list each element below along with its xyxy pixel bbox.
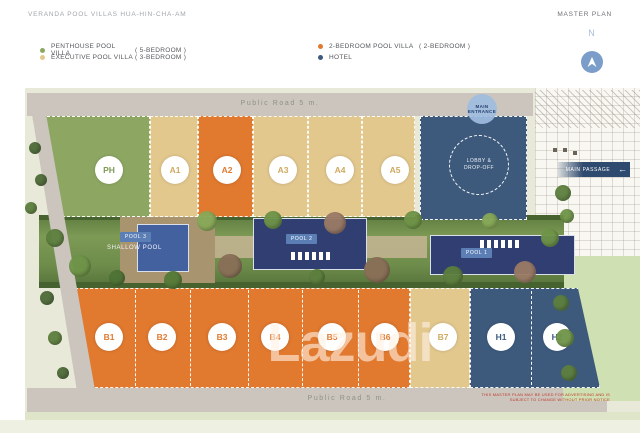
- tree-icon: [404, 211, 422, 229]
- tree-icon: [553, 295, 569, 311]
- legend-label: 2-BEDROOM POOL VILLA: [329, 43, 419, 50]
- entrance-label: ENTRANCE: [468, 109, 496, 115]
- floorplan-detail: [573, 151, 577, 155]
- shallow-pool-label: SHALLOW POOL: [107, 245, 162, 251]
- master-plan-page: VERANDA POOL VILLAS HUA-HIN-CHA-AM MASTE…: [0, 0, 640, 433]
- floorplan-hatch: [535, 90, 640, 128]
- legend-detail: ( 5-BEDROOM ): [135, 47, 186, 54]
- tree-icon: [35, 174, 47, 186]
- tree-icon: [69, 255, 91, 277]
- unit-circle-B2: B2: [148, 323, 176, 351]
- tree-icon: [309, 269, 325, 285]
- main-passage-banner: MAIN PASSAGE ←: [558, 162, 630, 177]
- tree-icon: [560, 209, 574, 223]
- tree-icon: [25, 202, 37, 214]
- tree-icon: [164, 271, 182, 289]
- legend-item-two-bedroom: 2-BEDROOM POOL VILLA ( 2-BEDROOM ): [318, 43, 470, 50]
- plan-label: MASTER PLAN: [557, 11, 612, 18]
- tree-icon: [40, 291, 54, 305]
- legend-item-hotel: HOTEL: [318, 54, 419, 61]
- unit-circle-A1: A1: [161, 156, 189, 184]
- compass-arrow-icon: [581, 51, 603, 73]
- unit-circle-A5: A5: [381, 156, 409, 184]
- lobby-label: LOBBY &: [467, 158, 492, 165]
- lobby-label: DROP-OFF: [464, 165, 494, 172]
- disclaimer-text: THIS MASTER PLAN MAY BE USED FOR ADVERTI…: [405, 392, 610, 402]
- tree-icon: [561, 365, 577, 381]
- compass-north-label: N: [581, 28, 603, 38]
- unit-circle-PH: PH: [95, 156, 123, 184]
- legend-label: EXECUTIVE POOL VILLA: [51, 54, 135, 61]
- tree-icon: [541, 229, 559, 247]
- main-entrance-badge: MAIN ENTRANCE: [467, 94, 497, 124]
- tree-icon: [57, 367, 69, 379]
- pool-3-badge: POOL 3: [120, 232, 151, 242]
- pool-steps: [480, 240, 519, 248]
- unit-circle-A4: A4: [326, 156, 354, 184]
- tree-icon: [264, 211, 282, 229]
- tree-icon: [556, 329, 574, 347]
- floorplan-detail: [563, 148, 567, 152]
- unit-circle-A2: A2: [213, 156, 241, 184]
- public-road-top: Public Road 5 m.: [27, 93, 533, 116]
- tree-icon: [443, 266, 463, 286]
- legend-label: HOTEL: [329, 54, 419, 61]
- pool-1-badge: POOL 1: [461, 248, 492, 258]
- walkway: [367, 236, 427, 258]
- tree-icon: [29, 142, 41, 154]
- main-passage-label: MAIN PASSAGE: [558, 167, 618, 173]
- floorplan-detail: [553, 148, 557, 152]
- tree-icon: [555, 185, 571, 201]
- unit-circle-A3: A3: [269, 156, 297, 184]
- legend-dot-two-bedroom-icon: [318, 44, 323, 49]
- unit-divider: [531, 291, 532, 385]
- legend-dot-executive-icon: [40, 55, 45, 60]
- legend-detail: ( 3-BEDROOM ): [135, 54, 186, 61]
- pool-steps: [291, 252, 330, 260]
- pool-2-badge: POOL 2: [286, 234, 317, 244]
- arrow-left-icon: ←: [618, 165, 627, 174]
- footer-lawn-strip: [0, 420, 640, 433]
- legend-dot-hotel-icon: [318, 55, 323, 60]
- tree-icon: [364, 257, 390, 283]
- tree-icon: [109, 270, 125, 286]
- lawn-strip: [25, 412, 640, 420]
- tree-icon: [46, 229, 64, 247]
- site-map: Public Road 5 m. Public Road 5 m. POOL 3…: [25, 88, 640, 420]
- legend-dot-penthouse-icon: [40, 48, 45, 53]
- legend-item-executive: EXECUTIVE POOL VILLA ( 3-BEDROOM ): [40, 54, 186, 61]
- tree-icon: [48, 331, 62, 345]
- unit-divider: [135, 290, 136, 386]
- tree-icon: [324, 212, 346, 234]
- road-label-top: Public Road 5 m.: [27, 100, 533, 107]
- tree-icon: [218, 254, 242, 278]
- unit-divider: [190, 290, 191, 386]
- watermark: Lazudi: [195, 312, 505, 374]
- tree-icon: [514, 261, 536, 283]
- tree-icon: [482, 213, 498, 229]
- page-title: VERANDA POOL VILLAS HUA-HIN-CHA-AM: [28, 11, 186, 18]
- legend-detail: ( 2-BEDROOM ): [419, 43, 470, 50]
- tree-icon: [197, 211, 217, 231]
- unit-circle-B1: B1: [95, 323, 123, 351]
- lobby-drop-off-circle: LOBBY & DROP-OFF: [449, 135, 509, 195]
